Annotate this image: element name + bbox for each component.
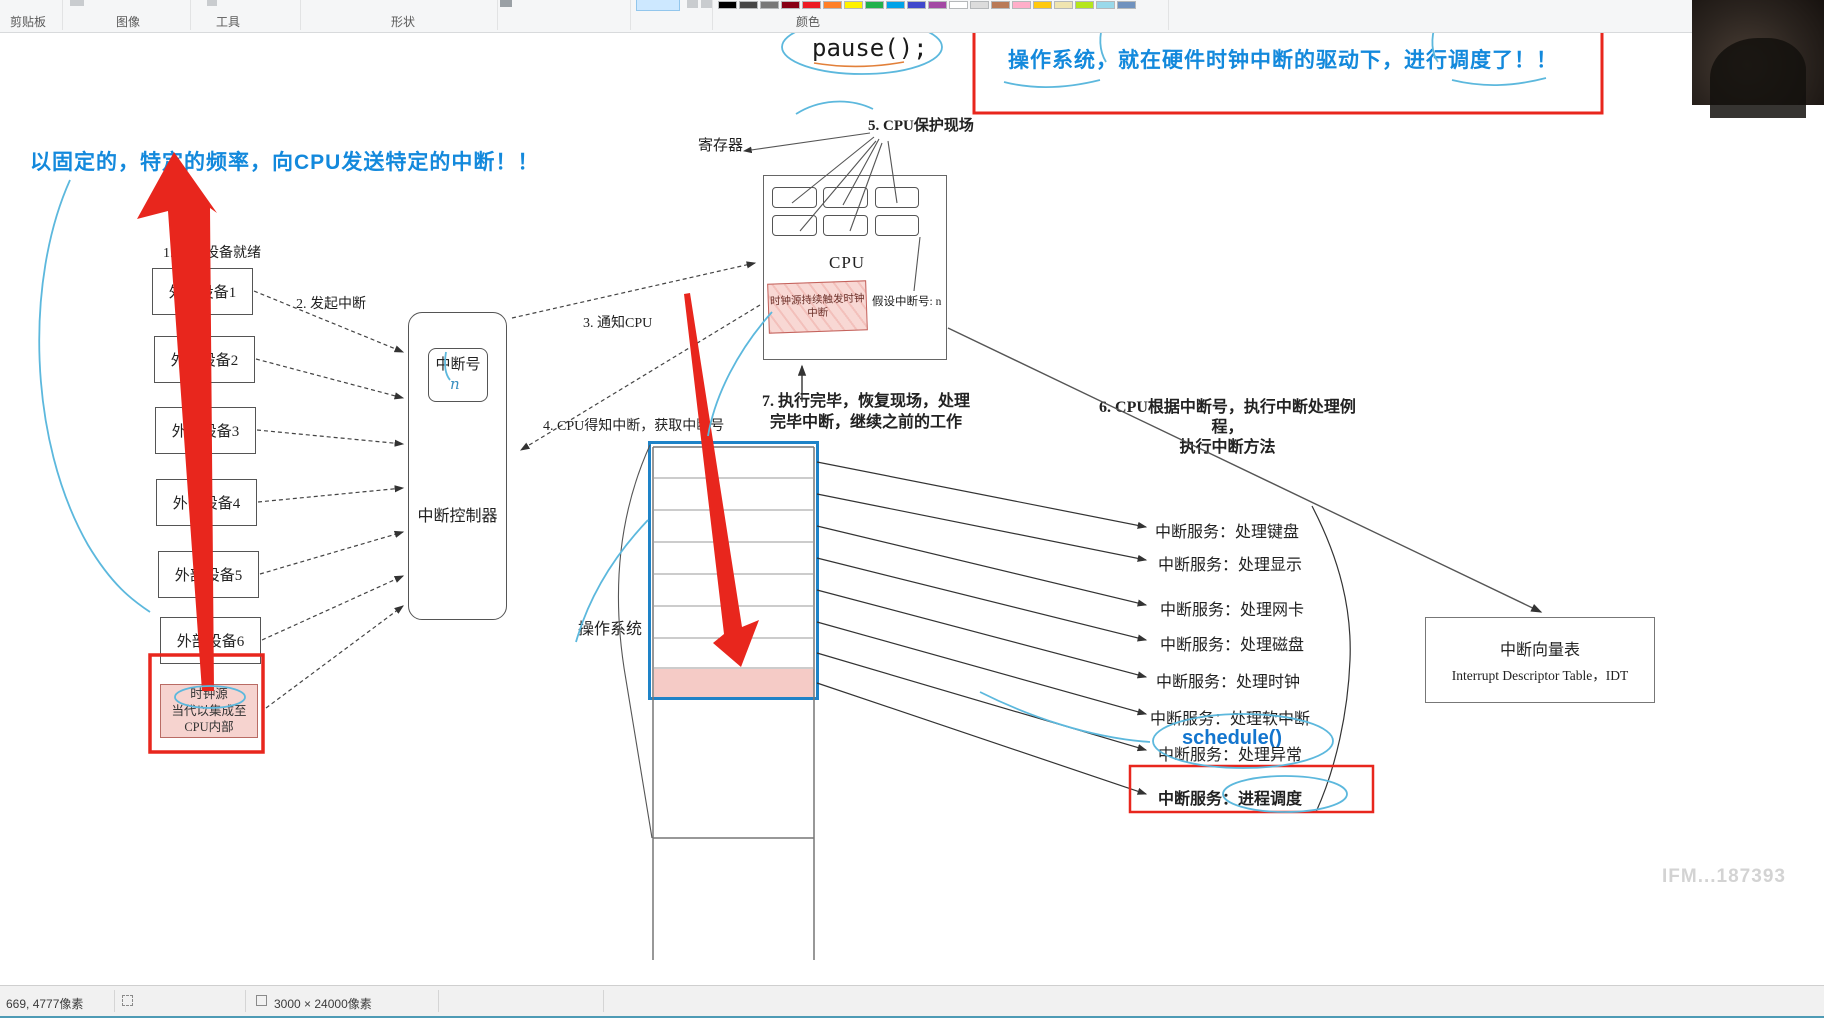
register-cell — [772, 187, 817, 208]
device-box-4: 外部设备4 — [156, 479, 257, 526]
device-box-3: 外部设备3 — [155, 407, 256, 454]
clock-source-line2: 当代以集成至 — [171, 703, 246, 720]
device-box-5: 外部设备5 — [158, 551, 259, 598]
idt-title: 中断向量表 — [1500, 636, 1580, 660]
step6-line1: 6. CPU根据中断号，执行中断处理例程， — [1085, 398, 1370, 438]
color-swatch[interactable] — [1033, 1, 1052, 9]
color2-button[interactable] — [701, 0, 712, 8]
color-swatch[interactable] — [991, 1, 1010, 9]
os-table-highlight-frame — [648, 441, 819, 700]
color-swatch[interactable] — [781, 1, 800, 9]
step7-label: 7. 执行完毕，恢复现场，处理 完毕中断，继续之前的工作 — [760, 392, 972, 434]
color-swatch[interactable] — [865, 1, 884, 9]
color-swatch[interactable] — [802, 1, 821, 9]
color-swatch[interactable] — [739, 1, 758, 9]
cursor-position: 669, 4777像素 — [6, 995, 83, 1012]
register-label: 寄存器 — [698, 134, 743, 155]
pause-code: pause(); — [812, 34, 928, 62]
interrupt-number-value: n — [450, 375, 460, 393]
status-bar: 669, 4777像素 3000 × 24000像素 — [0, 985, 1824, 1018]
color-swatch[interactable] — [886, 1, 905, 9]
service-network: 中断服务：处理网卡 — [1160, 596, 1304, 620]
webcam-overlay — [1692, 0, 1824, 105]
step6-line2: 执行中断方法 — [1085, 438, 1370, 458]
ribbon-group-colors: 颜色 — [796, 13, 820, 30]
device-box-6: 外部设备6 — [160, 617, 261, 664]
register-cell — [875, 187, 919, 208]
os-label: 操作系统 — [578, 615, 642, 639]
paint-application-window: 剪贴板 图像 工具 形状 颜色 以固定的，特定的频率，向CPU发送特定的中断！！… — [0, 0, 1824, 1018]
toolbar-icon-remnant[interactable] — [70, 0, 84, 6]
step2-label: 2. 发起中断 — [296, 293, 366, 313]
cpu-clock-note-line2: 中断 — [807, 307, 828, 321]
step7-line1: 7. 执行完毕，恢复现场，处理 — [760, 392, 972, 413]
clock-source-title: 时钟源 — [190, 686, 228, 703]
canvas-size-icon — [256, 995, 267, 1006]
color-swatch[interactable] — [1054, 1, 1073, 9]
ribbon-group-tools: 工具 — [216, 13, 240, 30]
interrupt-controller-label: 中断控制器 — [408, 502, 507, 526]
canvas-size: 3000 × 24000像素 — [274, 995, 372, 1012]
service-softirq: 中断服务：处理软中断 — [1150, 705, 1310, 729]
color-swatch[interactable] — [1075, 1, 1094, 9]
ribbon-group-shapes: 形状 — [391, 13, 415, 30]
color-swatch[interactable] — [718, 1, 737, 9]
color-swatch[interactable] — [844, 1, 863, 9]
service-keyboard: 中断服务：处理键盘 — [1155, 518, 1299, 542]
register-cell — [823, 187, 868, 208]
step7-line2: 完毕中断，继续之前的工作 — [760, 413, 972, 434]
color1-button[interactable] — [687, 0, 698, 8]
left-annotation: 以固定的，特定的频率，向CPU发送特定的中断！！ — [30, 146, 539, 176]
color-swatch[interactable] — [1117, 1, 1136, 9]
ribbon-toolbar: 剪贴板 图像 工具 形状 颜色 — [0, 0, 1824, 33]
top-annotation: 操作系统，就在硬件时钟中断的驱动下，进行调度了！！ — [1008, 44, 1558, 74]
cpu-label: CPU — [829, 253, 865, 273]
cpu-clock-note: 时钟源持续触发时钟 中断 — [767, 280, 868, 333]
idt-subtitle: Interrupt Descriptor Table，IDT — [1452, 664, 1629, 684]
ribbon-group-image: 图像 — [116, 13, 140, 30]
clock-source-box: 时钟源 当代以集成至 CPU内部 — [160, 684, 258, 738]
watermark: IFM...187393 — [1662, 866, 1786, 888]
step6-label: 6. CPU根据中断号，执行中断处理例程， 执行中断方法 — [1085, 398, 1370, 458]
step3-label: 3. 通知CPU — [583, 312, 652, 332]
color-swatch[interactable] — [1012, 1, 1031, 9]
service-disk: 中断服务：处理磁盘 — [1160, 631, 1304, 655]
toolbar-icon-remnant[interactable] — [207, 0, 217, 6]
step5-label: 5. CPU保护现场 — [868, 114, 974, 135]
step4-label: 4. CPU得知中断，获取中断号 — [543, 415, 724, 435]
color-swatch[interactable] — [928, 1, 947, 9]
service-exception: 中断服务：处理异常 — [1158, 741, 1302, 765]
selection-size-icon — [122, 995, 133, 1006]
service-clock: 中断服务：处理时钟 — [1156, 668, 1300, 692]
ribbon-group-clipboard: 剪贴板 — [10, 13, 46, 30]
idt-box: 中断向量表 Interrupt Descriptor Table，IDT — [1425, 617, 1655, 703]
step1-label: 1. 外部设备就绪 — [163, 242, 261, 262]
service-scheduling: 中断服务：进程调度 — [1158, 785, 1302, 809]
device-box-2: 外部设备2 — [154, 336, 255, 383]
register-cell — [875, 215, 919, 236]
toolbar-icon-remnant[interactable] — [500, 0, 512, 7]
color-swatch[interactable] — [907, 1, 926, 9]
device-box-1: 外部设备1 — [152, 268, 253, 315]
color-swatch[interactable] — [949, 1, 968, 9]
interrupt-hint: 假设中断号: n — [872, 293, 941, 309]
color-swatch[interactable] — [970, 1, 989, 9]
color-palette — [718, 1, 1136, 9]
register-cell — [772, 215, 817, 236]
color-swatch[interactable] — [1096, 1, 1115, 9]
webcam-person — [1710, 38, 1806, 118]
register-cell — [823, 215, 868, 236]
color-swatch[interactable] — [823, 1, 842, 9]
clock-source-line3: CPU内部 — [184, 719, 233, 736]
service-display: 中断服务：处理显示 — [1158, 551, 1302, 575]
color-swatch[interactable] — [760, 1, 779, 9]
active-tool-button[interactable] — [636, 0, 680, 11]
